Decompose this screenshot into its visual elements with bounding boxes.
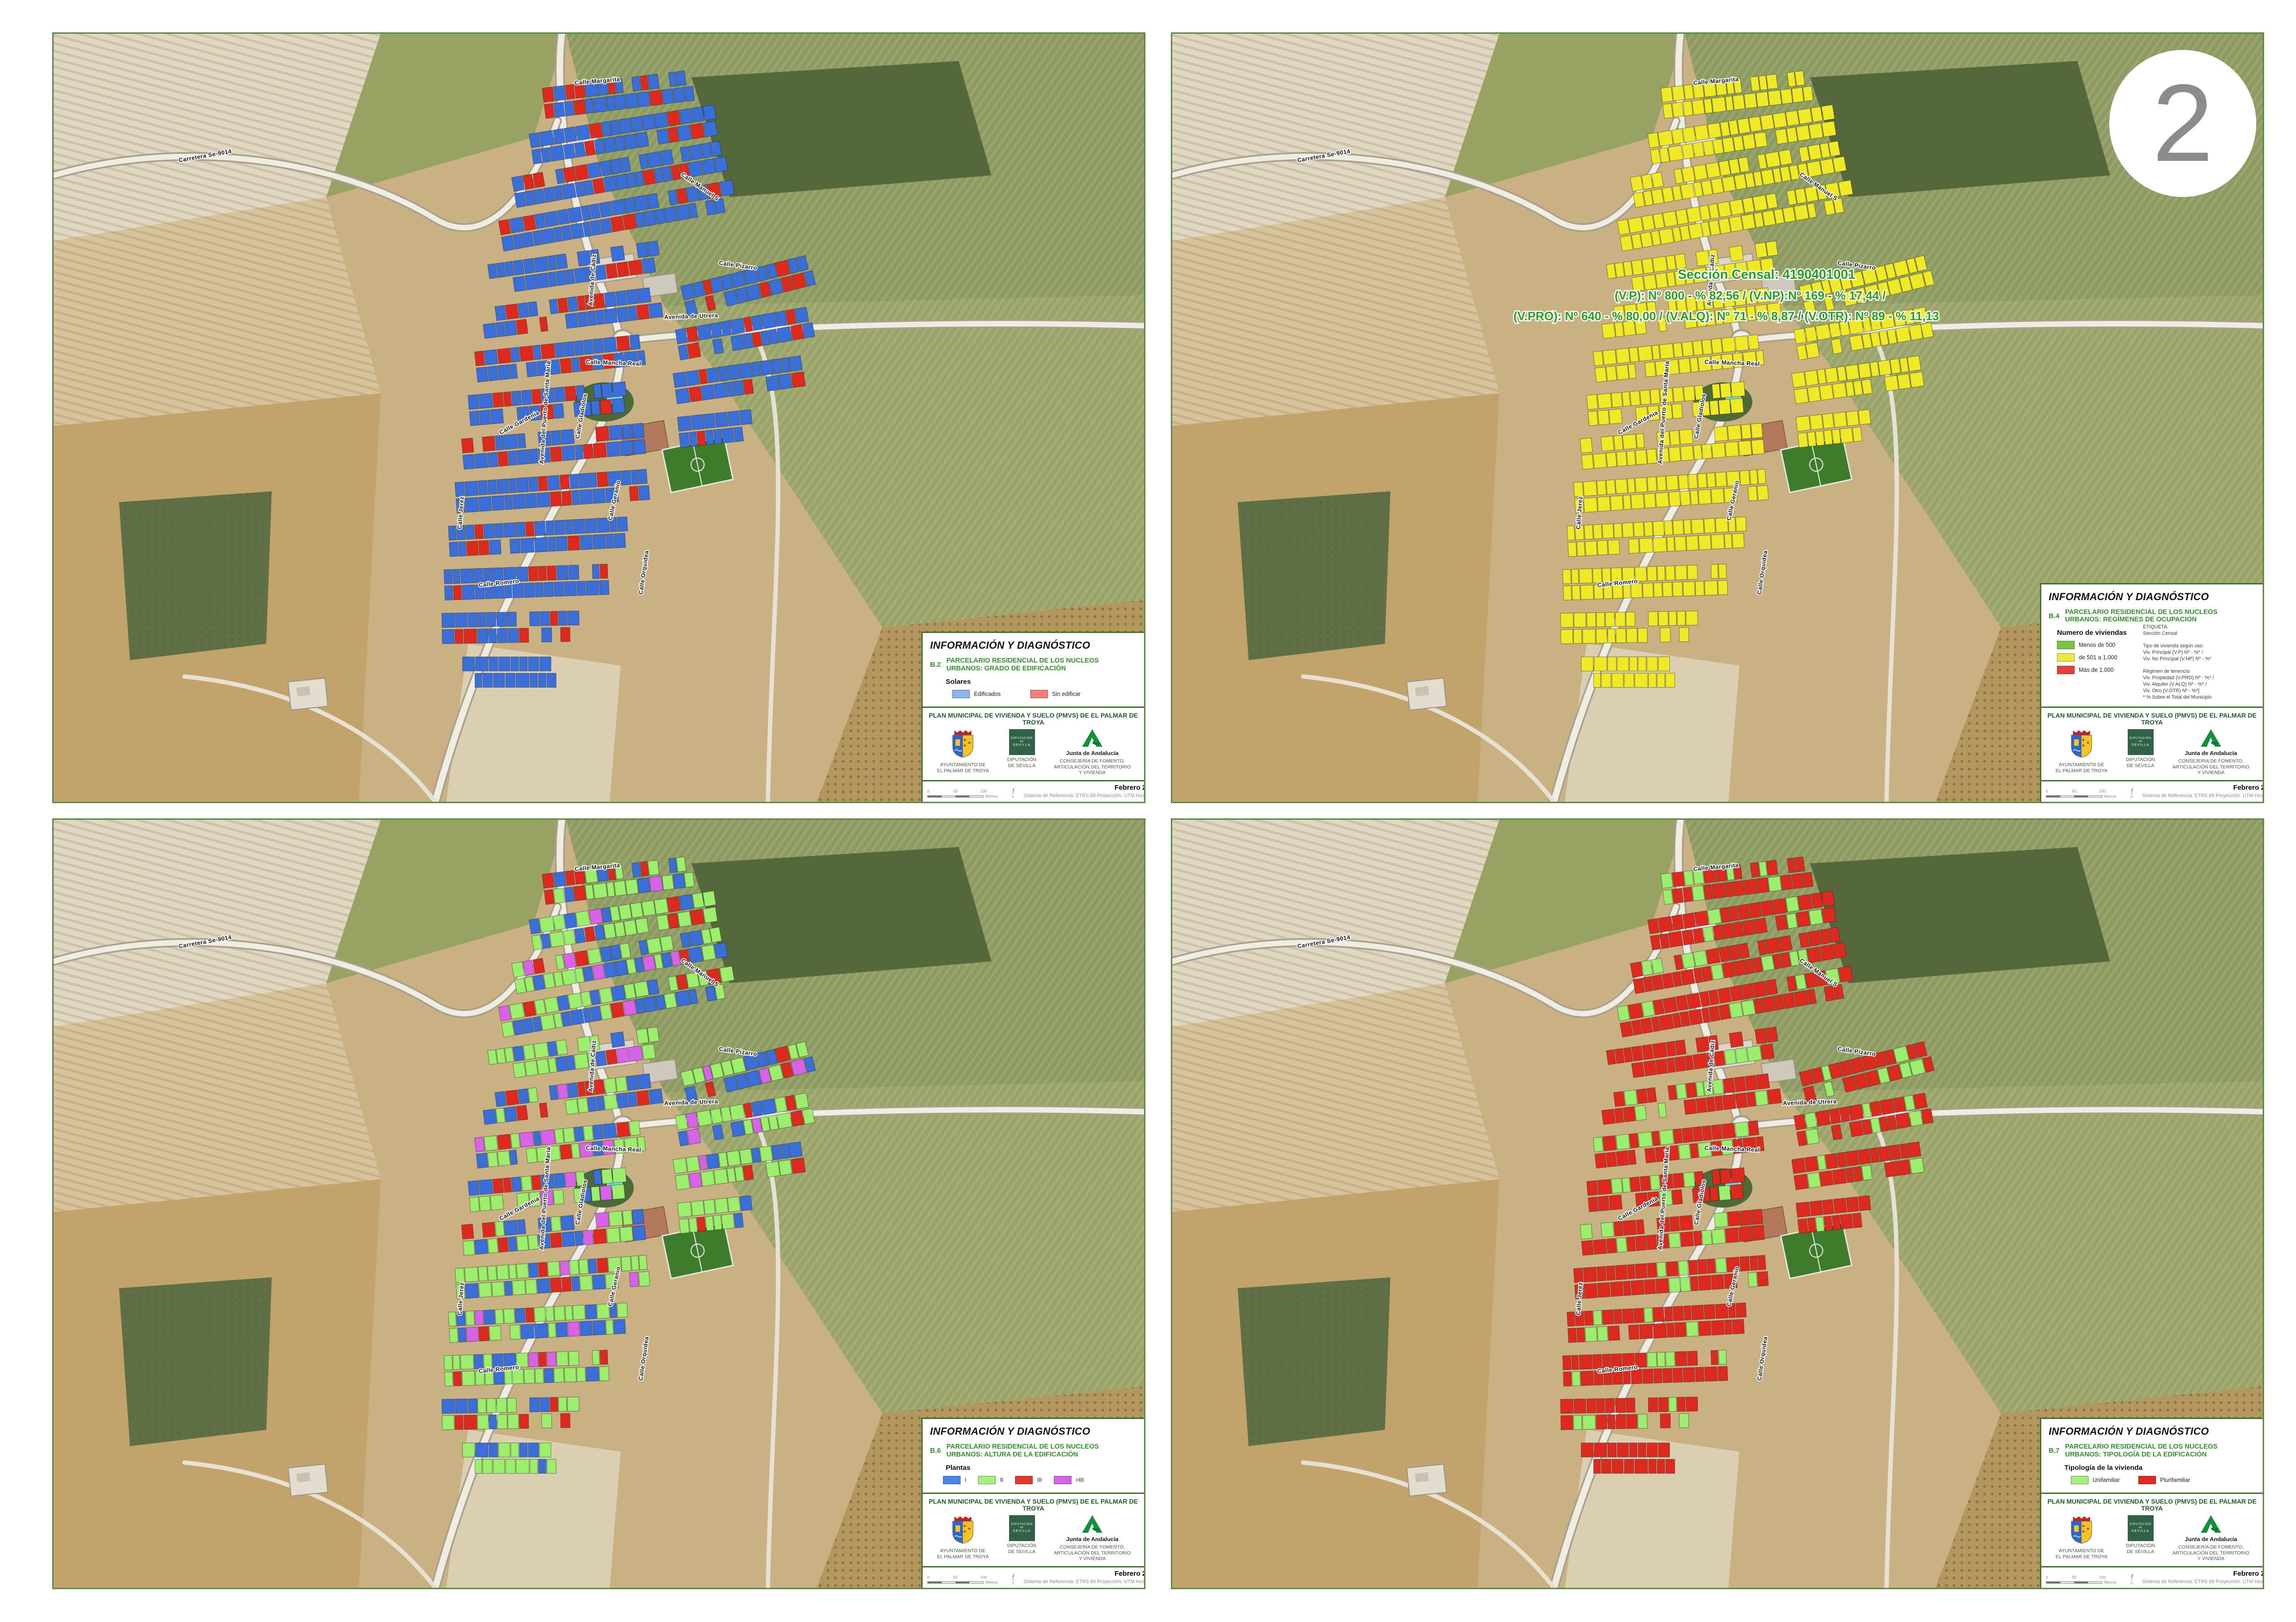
logo-caption: Y VIVIENDA bbox=[1047, 1556, 1138, 1562]
legend-swatch-plurifamiliar bbox=[2138, 1476, 2156, 1484]
legend-title: INFORMACIÓN Y DIAGNÓSTICO bbox=[2049, 591, 2255, 603]
note-line: Viv. Propiedad (V.PRO) Nº - %* / bbox=[2143, 675, 2255, 682]
plan-title: PLAN MUNICIPAL DE VIVIENDA Y SUELO (PMVS… bbox=[2046, 712, 2258, 726]
map-subtitle: PARCELARIO RESIDENCIAL DE LOS NUCLEOS UR… bbox=[2065, 608, 2255, 623]
scale-tick: 50 bbox=[953, 1575, 958, 1579]
note-line: Tipo de vivienda según uso: bbox=[2143, 643, 2255, 650]
logo-diputacion: DIPUTACIÓN DE SEVILLA DIPUTACIÓN DE SEVI… bbox=[998, 1515, 1046, 1555]
legend-stack: INFORMACIÓN Y DIAGNÓSTICO B.2 PARCELARIO… bbox=[921, 632, 1144, 802]
legend-stack: INFORMACIÓN Y DIAGNÓSTICO B.4 PARCELARIO… bbox=[2040, 583, 2263, 802]
plan-box: PLAN MUNICIPAL DE VIVIENDA Y SUELO (PMVS… bbox=[2041, 1493, 2263, 1566]
north-arrow-icon: N bbox=[1010, 1573, 1017, 1585]
svg-text:N: N bbox=[2131, 796, 2133, 799]
diputacion-logo-icon: DIPUTACIÓN DE SEVILLA bbox=[1009, 1515, 1035, 1541]
sheet-number: 2 bbox=[2152, 68, 2213, 178]
legend-box: INFORMACIÓN Y DIAGNÓSTICO B.7 PARCELARIO… bbox=[2041, 1419, 2263, 1492]
legend-heading: Numero de viviendas bbox=[2057, 629, 2143, 637]
plan-title: PLAN MUNICIPAL DE VIVIENDA Y SUELO (PMVS… bbox=[2046, 1498, 2258, 1512]
scale-tick: 100 bbox=[2099, 1575, 2106, 1579]
logo-caption: DE SEVILLA bbox=[998, 1549, 1046, 1555]
footer-strip: 0 50 100 Metros N Febrero 2024 bbox=[2041, 780, 2263, 802]
logo-caption: AYUNTAMIENTO DE bbox=[2048, 1548, 2115, 1554]
scale-tick: 50 bbox=[953, 789, 958, 793]
note-line: ETIQUETA: bbox=[2143, 624, 2255, 631]
diputacion-logo-icon: DIPUTACIÓN DE SEVILLA bbox=[1009, 729, 1035, 755]
map-code: B.4 bbox=[2049, 612, 2059, 620]
ayuntamiento-shield-icon bbox=[2069, 1515, 2094, 1544]
footer-strip: 0 50 100 Metros N Febrero 2024 bbox=[923, 780, 1144, 802]
logo-caption: DE SEVILLA bbox=[2117, 1549, 2165, 1555]
map-date: Febrero 2024 bbox=[2142, 1570, 2264, 1578]
logo-caption: DIPUTACIÓN bbox=[998, 757, 1046, 763]
junta-name: Junta de Andalucía bbox=[2166, 1536, 2256, 1542]
legend-label: III bbox=[1037, 1477, 1041, 1483]
scale-tick: 100 bbox=[2099, 789, 2106, 793]
scale-tick: 0 bbox=[2046, 1575, 2048, 1579]
scale-bar: 0 50 100 Metros bbox=[927, 1575, 998, 1585]
scale-bar: 0 50 100 Metros bbox=[2046, 1575, 2116, 1585]
reference-system: Sistema de Referencia: ETRS 89 Proyecció… bbox=[1023, 793, 1145, 799]
logo-caption: Y VIVIENDA bbox=[1047, 770, 1138, 776]
legend-item: Plurifamiliar bbox=[2138, 1476, 2190, 1484]
legend-swatch-mas-3-plantas bbox=[1054, 1476, 1071, 1484]
scale-tick: 100 bbox=[980, 789, 987, 793]
legend-box: INFORMACIÓN Y DIAGNÓSTICO B.2 PARCELARIO… bbox=[923, 633, 1144, 706]
map-subtitle: PARCELARIO RESIDENCIAL DE LOS NUCLEOS UR… bbox=[2065, 1443, 2255, 1458]
map-panel-b2: INFORMACIÓN Y DIAGNÓSTICO B.2 PARCELARIO… bbox=[52, 32, 1145, 803]
reference-system: Sistema de Referencia: ETRS 89 Proyecció… bbox=[2142, 1579, 2264, 1585]
logo-caption: AYUNTAMIENTO DE bbox=[929, 762, 997, 768]
svg-text:N: N bbox=[1012, 796, 1014, 799]
legend-label: II bbox=[1000, 1477, 1003, 1483]
ayuntamiento-shield-icon bbox=[2069, 729, 2094, 758]
legend-swatch-2-plantas bbox=[978, 1476, 996, 1484]
logo-caption: AYUNTAMIENTO DE bbox=[929, 1548, 997, 1554]
legend-item: Edificados bbox=[952, 690, 1001, 698]
junta-andalucia-icon bbox=[1082, 1515, 1102, 1533]
legend-item: Unifamiliar bbox=[2071, 1476, 2120, 1484]
note-line: * % Sobre el Total del Municipio bbox=[2143, 694, 2255, 701]
legend-swatch-501-1000 bbox=[2057, 653, 2075, 662]
plan-title: PLAN MUNICIPAL DE VIVIENDA Y SUELO (PMVS… bbox=[927, 712, 1139, 726]
logo-caption: CONSEJERÍA DE FOMENTO, bbox=[1047, 1545, 1138, 1551]
note-line bbox=[2143, 663, 2255, 669]
logo-caption: DIPUTACIÓN bbox=[2117, 757, 2165, 763]
logo-caption: EL PALMAR DE TROYA bbox=[2048, 768, 2115, 774]
sheet-number-badge: 2 bbox=[2109, 50, 2256, 197]
logo-caption: CONSEJERÍA DE FOMENTO, bbox=[1047, 759, 1138, 765]
diputacion-logo-icon: DIPUTACIÓN DE SEVILLA bbox=[2128, 1515, 2154, 1541]
logo-caption: Y VIVIENDA bbox=[2166, 770, 2256, 776]
legend-swatch-edificados bbox=[952, 690, 970, 698]
reference-system: Sistema de Referencia: ETRS 89 Proyecció… bbox=[2142, 793, 2264, 799]
legend-title: INFORMACIÓN Y DIAGNÓSTICO bbox=[930, 1425, 1137, 1438]
legend-item: >III bbox=[1054, 1476, 1084, 1484]
diputacion-logo-icon: DIPUTACIÓN DE SEVILLA bbox=[2128, 729, 2154, 755]
logo-caption: EL PALMAR DE TROYA bbox=[2048, 1554, 2115, 1561]
logo-junta: Junta de Andalucía CONSEJERÍA DE FOMENTO… bbox=[1047, 729, 1138, 776]
map-code: B.7 bbox=[2049, 1447, 2059, 1455]
ayuntamiento-shield-icon bbox=[951, 729, 975, 758]
legend-box: INFORMACIÓN Y DIAGNÓSTICO B.4 PARCELARIO… bbox=[2041, 584, 2263, 707]
plan-box: PLAN MUNICIPAL DE VIVIENDA Y SUELO (PMVS… bbox=[923, 1493, 1144, 1566]
north-arrow-icon: N bbox=[1010, 786, 1017, 799]
legend-label: Unifamiliar bbox=[2093, 1477, 2120, 1483]
logo-caption: CONSEJERÍA DE FOMENTO, bbox=[2166, 759, 2256, 765]
legend-label: >III bbox=[1076, 1477, 1084, 1483]
scale-tick: 0 bbox=[927, 789, 930, 793]
logo-ayuntamiento: AYUNTAMIENTO DE EL PALMAR DE TROYA bbox=[929, 729, 997, 774]
legend-title: INFORMACIÓN Y DIAGNÓSTICO bbox=[930, 639, 1137, 651]
junta-name: Junta de Andalucía bbox=[2166, 750, 2256, 756]
legend-label: I bbox=[965, 1477, 966, 1483]
scale-bar: 0 50 100 Metros bbox=[927, 789, 998, 799]
logo-caption: DE SEVILLA bbox=[998, 763, 1046, 769]
legend-item: II bbox=[978, 1476, 1003, 1484]
note-line: Viv. No Principal (V.NP) Nº - %* bbox=[2143, 656, 2255, 663]
plan-sheet: INFORMACIÓN Y DIAGNÓSTICO B.2 PARCELARIO… bbox=[0, 0, 2296, 1622]
scale-unit: Metros bbox=[986, 794, 998, 799]
junta-andalucia-icon bbox=[1082, 729, 1102, 747]
logo-caption: ARTICULACIÓN DEL TERRITORIO bbox=[2166, 1551, 2256, 1557]
plan-box: PLAN MUNICIPAL DE VIVIENDA Y SUELO (PMVS… bbox=[2041, 707, 2263, 780]
junta-name: Junta de Andalucía bbox=[1047, 750, 1138, 756]
legend-item: I bbox=[943, 1476, 966, 1484]
map-code: B.6 bbox=[930, 1447, 941, 1455]
footer-strip: 0 50 100 Metros N Febrero 2024 bbox=[2041, 1566, 2263, 1588]
logo-caption: CONSEJERÍA DE FOMENTO, bbox=[2166, 1545, 2256, 1551]
legend-label: Edificados bbox=[974, 691, 1001, 697]
logo-caption: Y VIVIENDA bbox=[2166, 1556, 2256, 1562]
note-line: Viv. Alquiler (V.ALQ) Nº - %* / bbox=[2143, 682, 2255, 688]
map-panel-b6: INFORMACIÓN Y DIAGNÓSTICO B.6 PARCELARIO… bbox=[52, 818, 1145, 1589]
scale-tick: 0 bbox=[2046, 789, 2048, 793]
scale-unit: Metros bbox=[2104, 1580, 2116, 1585]
legend-swatch-menos-500 bbox=[2057, 641, 2075, 649]
scale-unit: Metros bbox=[986, 1580, 998, 1585]
legend-item: Sin edificar bbox=[1030, 690, 1081, 698]
map-date: Febrero 2024 bbox=[2142, 784, 2264, 792]
map-date: Febrero 2024 bbox=[1023, 784, 1145, 792]
logo-caption: ARTICULACIÓN DEL TERRITORIO bbox=[2166, 765, 2256, 771]
legend-label: de 501 a 1.000 bbox=[2079, 654, 2117, 661]
footer-strip: 0 50 100 Metros N Febrero 2024 bbox=[923, 1566, 1144, 1588]
scale-tick: 50 bbox=[2072, 789, 2076, 793]
legend-swatch-sin-edificar bbox=[1030, 690, 1048, 698]
scale-tick: 0 bbox=[927, 1575, 930, 1579]
logo-junta: Junta de Andalucía CONSEJERÍA DE FOMENTO… bbox=[1047, 1515, 1138, 1562]
north-arrow-icon: N bbox=[2128, 1573, 2136, 1585]
logo-caption: AYUNTAMIENTO DE bbox=[2048, 762, 2115, 768]
logo-caption: ARTICULACIÓN DEL TERRITORIO bbox=[1047, 1551, 1138, 1557]
note-line: Viv. Principal (V.P) Nº - %* / bbox=[2143, 650, 2255, 656]
note-line: Régimen de tenencia: bbox=[2143, 669, 2255, 675]
logo-caption: DIPUTACIÓN bbox=[2117, 1543, 2165, 1549]
legend-heading: Tipología de la vivienda bbox=[2064, 1464, 2255, 1472]
map-code: B.2 bbox=[930, 661, 941, 669]
logo-ayuntamiento: AYUNTAMIENTO DE EL PALMAR DE TROYA bbox=[2048, 729, 2115, 774]
scale-tick: 100 bbox=[980, 1575, 987, 1579]
logo-diputacion: DIPUTACIÓN DE SEVILLA DIPUTACIÓN DE SEVI… bbox=[2117, 1515, 2165, 1555]
map-panel-b7: INFORMACIÓN Y DIAGNÓSTICO B.7 PARCELARIO… bbox=[1171, 818, 2264, 1589]
legend-label: Plurifamiliar bbox=[2160, 1477, 2190, 1483]
junta-name: Junta de Andalucía bbox=[1047, 1536, 1138, 1542]
map-date: Febrero 2024 bbox=[1023, 1570, 1145, 1578]
map-subtitle: PARCELARIO RESIDENCIAL DE LOS NUCLEOS UR… bbox=[946, 657, 1137, 672]
scale-tick: 50 bbox=[2072, 1575, 2076, 1579]
legend-title: INFORMACIÓN Y DIAGNÓSTICO bbox=[2049, 1425, 2255, 1438]
logo-caption: DIPUTACIÓN bbox=[998, 1543, 1046, 1549]
logo-ayuntamiento: AYUNTAMIENTO DE EL PALMAR DE TROYA bbox=[929, 1515, 997, 1560]
logo-caption: EL PALMAR DE TROYA bbox=[929, 1554, 997, 1561]
legend-heading: Plantas bbox=[946, 1464, 1137, 1472]
junta-andalucia-icon bbox=[2201, 729, 2221, 747]
legend-heading: Solares bbox=[946, 678, 1137, 686]
legend-item: Más de 1.000 bbox=[2057, 666, 2143, 674]
logo-diputacion: DIPUTACIÓN DE SEVILLA DIPUTACIÓN DE SEVI… bbox=[998, 729, 1046, 769]
logo-ayuntamiento: AYUNTAMIENTO DE EL PALMAR DE TROYA bbox=[2048, 1515, 2115, 1560]
legend-label: Menos de 500 bbox=[2079, 642, 2115, 648]
logo-caption: ARTICULACIÓN DEL TERRITORIO bbox=[1047, 765, 1138, 771]
note-line bbox=[2143, 637, 2255, 643]
map-subtitle: PARCELARIO RESIDENCIAL DE LOS NUCLEOS UR… bbox=[946, 1443, 1137, 1458]
note-line: Sección Censal bbox=[2143, 631, 2255, 637]
legend-swatch-unifamiliar bbox=[2071, 1476, 2088, 1484]
legend-box: INFORMACIÓN Y DIAGNÓSTICO B.6 PARCELARIO… bbox=[923, 1419, 1144, 1492]
svg-text:N: N bbox=[1012, 1582, 1014, 1585]
logo-junta: Junta de Andalucía CONSEJERÍA DE FOMENTO… bbox=[2166, 729, 2256, 776]
reference-system: Sistema de Referencia: ETRS 89 Proyecció… bbox=[1023, 1579, 1145, 1585]
plan-title: PLAN MUNICIPAL DE VIVIENDA Y SUELO (PMVS… bbox=[927, 1498, 1139, 1512]
note-line: Viv. Otro (V.OTR) Nº - %*] bbox=[2143, 688, 2255, 694]
legend-stack: INFORMACIÓN Y DIAGNÓSTICO B.6 PARCELARIO… bbox=[921, 1418, 1144, 1588]
logo-caption: DE SEVILLA bbox=[2117, 763, 2165, 769]
logo-diputacion: DIPUTACIÓN DE SEVILLA DIPUTACIÓN DE SEVI… bbox=[2117, 729, 2165, 769]
junta-andalucia-icon bbox=[2201, 1515, 2221, 1533]
north-arrow-icon: N bbox=[2128, 786, 2136, 799]
logo-caption: EL PALMAR DE TROYA bbox=[929, 768, 997, 774]
legend-item: de 501 a 1.000 bbox=[2057, 653, 2143, 662]
legend-stack: INFORMACIÓN Y DIAGNÓSTICO B.7 PARCELARIO… bbox=[2040, 1418, 2263, 1588]
logo-junta: Junta de Andalucía CONSEJERÍA DE FOMENTO… bbox=[2166, 1515, 2256, 1562]
map-panel-b4: Sección Censal: 4190401001 (V.P): Nº 800… bbox=[1171, 32, 2264, 803]
legend-item: III bbox=[1015, 1476, 1041, 1484]
ayuntamiento-shield-icon bbox=[951, 1515, 975, 1544]
legend-swatch-3-plantas bbox=[1015, 1476, 1033, 1484]
scale-unit: Metros bbox=[2104, 794, 2116, 799]
legend-notes: ETIQUETA: Sección Censal Tipo de viviend… bbox=[2143, 623, 2255, 701]
legend-label: Sin edificar bbox=[1052, 691, 1081, 697]
plan-box: PLAN MUNICIPAL DE VIVIENDA Y SUELO (PMVS… bbox=[923, 707, 1144, 780]
scale-bar: 0 50 100 Metros bbox=[2046, 789, 2116, 799]
legend-swatch-1-planta bbox=[943, 1476, 961, 1484]
svg-text:N: N bbox=[2131, 1582, 2133, 1585]
legend-label: Más de 1.000 bbox=[2079, 667, 2114, 673]
legend-item: Menos de 500 bbox=[2057, 641, 2143, 649]
legend-swatch-mas-1000 bbox=[2057, 666, 2075, 674]
